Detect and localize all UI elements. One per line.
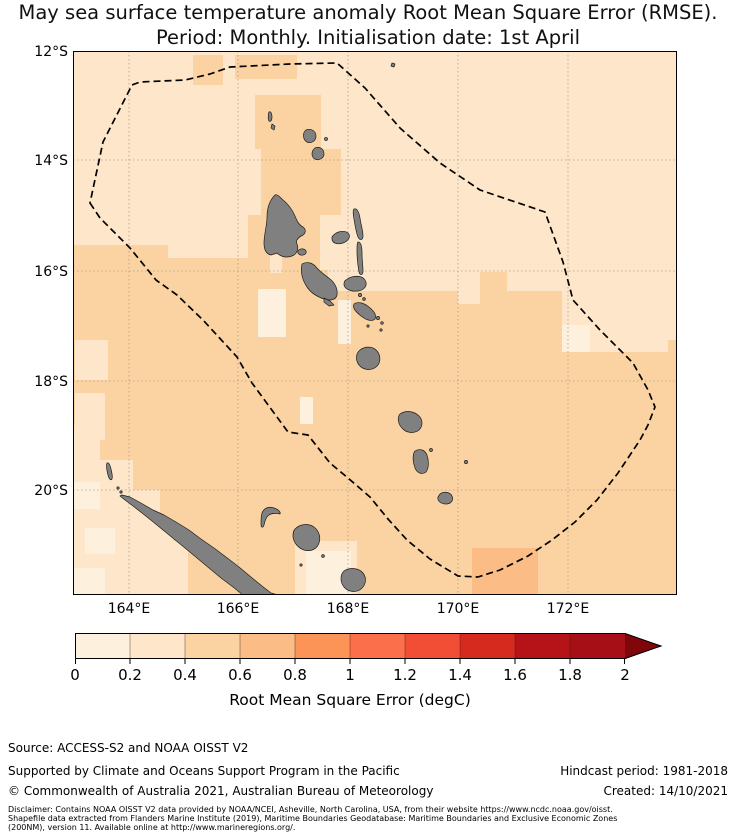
- colorbar-extend-arrow: [625, 633, 662, 659]
- island-futuna: [464, 460, 467, 463]
- island-belep-dot2: [120, 491, 122, 493]
- cb-tick-18: 1.8: [548, 666, 592, 684]
- island-paama: [358, 293, 361, 296]
- cb-tick-06: 0.6: [218, 666, 262, 684]
- cb-tick-08: 0.8: [273, 666, 317, 684]
- island-malo: [298, 249, 306, 255]
- island-vanua-lava: [303, 129, 316, 142]
- island-mare: [341, 569, 365, 592]
- source-text: Source: ACCESS-S2 and NOAA OISST V2: [8, 741, 248, 755]
- disclaimer-line3: (200NM), version 11. Available online at…: [8, 823, 295, 833]
- island-torres: [268, 112, 272, 121]
- cb-tick-1: 1: [328, 666, 372, 684]
- cb-tick-14: 1.4: [438, 666, 482, 684]
- lat-tick-14s: 14°S: [18, 153, 68, 169]
- lon-tick-172e: 172°E: [538, 601, 598, 617]
- cb-tick-0: 0: [53, 666, 97, 684]
- island-loyalty-dot: [300, 564, 302, 566]
- island-belep-dot1: [117, 487, 119, 489]
- lat-tick-18s: 18°S: [18, 374, 68, 390]
- lat-tick-16s: 16°S: [18, 264, 68, 280]
- island-shepherd-2: [381, 322, 384, 325]
- island-shepherd-3: [367, 325, 369, 327]
- lat-tick-12s: 12°S: [18, 44, 68, 60]
- island-aniwa: [430, 449, 433, 452]
- cb-tick-16: 1.6: [493, 666, 537, 684]
- lon-tick-170e: 170°E: [428, 601, 488, 617]
- island-shepherd-1: [376, 316, 379, 319]
- map-canvas: [73, 51, 677, 595]
- colorbar-label: Root Mean Square Error (degC): [75, 691, 625, 709]
- island-lopevi: [363, 298, 366, 301]
- colorbar-tick-marks: [76, 659, 625, 664]
- chart-title-line2: Period: Monthly. Initialisation date: 1s…: [156, 26, 580, 49]
- lon-tick-168e: 168°E: [318, 601, 378, 617]
- lon-tick-166e: 166°E: [208, 601, 268, 617]
- island-hiu: [391, 63, 395, 67]
- lat-tick-20s: 20°S: [18, 483, 68, 499]
- hindcast-text: Hindcast period: 1981-2018: [560, 764, 728, 778]
- island-mota: [325, 138, 328, 141]
- island-shepherd-4: [380, 329, 382, 331]
- lon-tick-164e: 164°E: [99, 601, 159, 617]
- colorbar: [75, 632, 667, 666]
- cb-tick-12: 1.2: [383, 666, 427, 684]
- island-aneityum: [438, 492, 453, 504]
- created-text: Created: 14/10/2021: [603, 784, 728, 798]
- cb-tick-04: 0.4: [163, 666, 207, 684]
- island-gaua: [312, 147, 324, 159]
- copyright-text: © Commonwealth of Australia 2021, Austra…: [8, 784, 433, 798]
- island-lifou-dot: [322, 555, 325, 558]
- chart-title-line1: May sea surface temperature anomaly Root…: [19, 1, 718, 24]
- island-efate: [356, 347, 379, 369]
- cb-tick-2: 2: [603, 666, 647, 684]
- cb-tick-02: 0.2: [108, 666, 152, 684]
- supported-text: Supported by Climate and Oceans Support …: [8, 764, 400, 778]
